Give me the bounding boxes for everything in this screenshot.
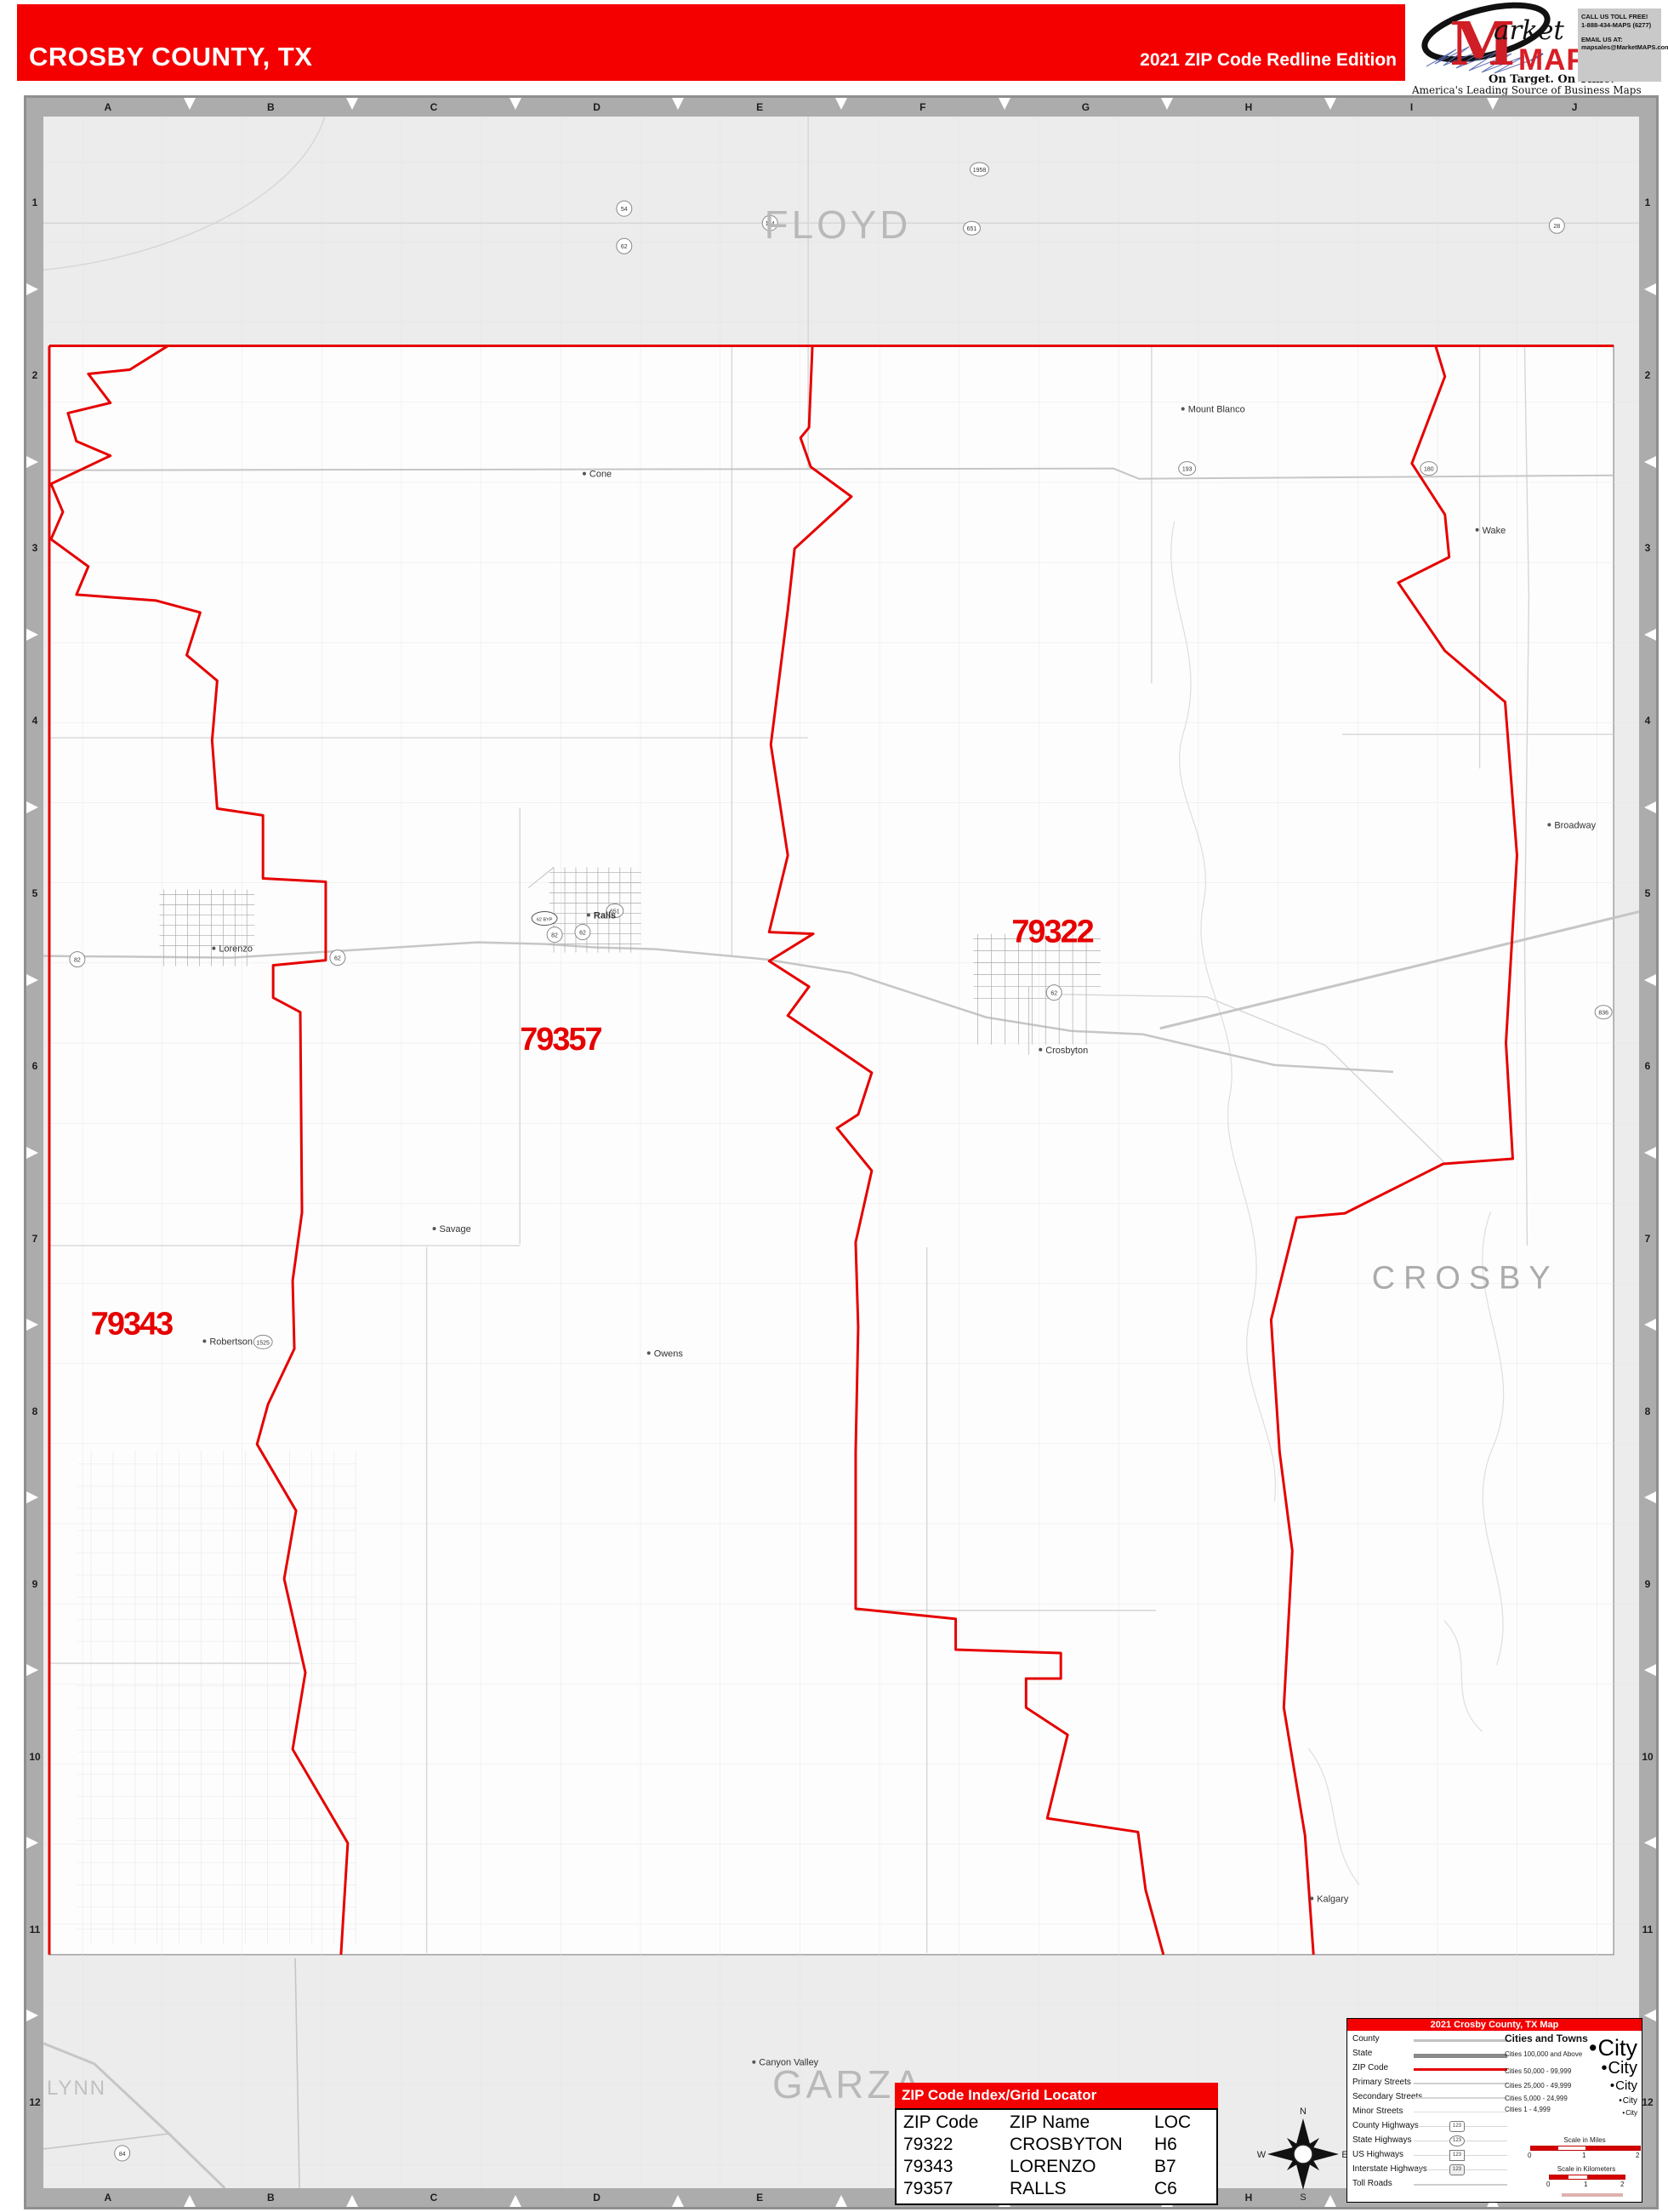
header-bar: CROSBY COUNTY, TX 2021 ZIP Code Redline … [17,4,1405,81]
ruler-cell: 9 [26,1497,43,1670]
contact-box: CALL US TOLL FREE! 1-888-434-MAPS (6277)… [1578,9,1661,82]
svg-text:651: 651 [967,226,977,232]
ruler-cell: 5 [26,807,43,980]
legend-title: 2021 Crosby County, TX Map [1347,2019,1642,2031]
ruler-cell: E [678,2188,841,2207]
ruler-cell: E [678,98,841,117]
edition-label: 2021 ZIP Code Redline Edition [1140,50,1397,71]
town: Lorenzo [212,944,253,955]
ruler-top: A B C D E F G H I J [26,98,1656,117]
highway-shield: 62 [1046,985,1062,1001]
ruler-cell: 2 [26,289,43,462]
town: Crosbyton [1039,1046,1088,1056]
legend-city-row: Cities 100,000 and AboveCity [1505,2050,1637,2059]
highway-shield: 54 [617,201,632,216]
logo-market: arket [1494,15,1564,46]
ruler-cell: 1 [1639,117,1656,289]
ruler-cell: H [1167,98,1330,117]
table-row: 79343 LORENZO B7 [897,2156,1216,2178]
ruler-cell: B [190,2188,353,2207]
ruler-cell: A [26,98,190,117]
ruler-cell: 7 [1639,1153,1656,1325]
svg-text:82: 82 [551,933,558,939]
svg-text:1958: 1958 [973,168,987,174]
page: CROSBY COUNTY, TX 2021 ZIP Code Redline … [0,0,1668,2212]
legend-row: Interstate Highways123 [1352,2164,1523,2178]
svg-text:62: 62 [579,931,586,937]
legend-city-row: Cities 5,000 - 24,999City [1505,2094,1637,2103]
compass-rose-icon: N S W E [1256,2105,1350,2202]
map-frame: A B C D E F G H I J A B C D E F G H I J … [24,95,1659,2209]
highway-shield: 180 [1420,462,1437,476]
ruler-cell: B [190,98,353,117]
ruler-cell: 10 [26,1670,43,1843]
contact-call: CALL US TOLL FREE! [1581,13,1659,21]
svg-text:82: 82 [74,958,81,964]
rural-street-grid [77,1451,357,1945]
ruler-right: 1 2 3 4 5 6 7 8 9 10 11 12 [1639,117,1656,2188]
svg-text:Owens: Owens [654,1348,684,1359]
svg-text:Ralls: Ralls [594,911,616,921]
legend-city-row: Cities 1 - 4,999City [1505,2105,1637,2114]
zip-index-body: ZIP Code ZIP Name LOC 79322 CROSBYTON H6… [895,2108,1218,2205]
ruler-cell: 3 [1639,462,1656,635]
contact-email: mapsales@MarketMAPS.com [1581,43,1659,52]
svg-text:Cone: Cone [589,470,612,480]
zip-index-title: ZIP Code Index/Grid Locator [895,2083,1218,2108]
ruler-cell: I [1330,98,1494,117]
ruler-left: 1 2 3 4 5 6 7 8 9 10 11 12 [26,117,43,2188]
svg-text:62 BYP: 62 BYP [537,918,553,923]
highway-shield: 62 [617,238,632,254]
legend-row: Primary Streets [1352,2078,1523,2091]
svg-text:1525: 1525 [256,1340,270,1346]
legend-row: US Highways123 [1352,2150,1523,2164]
county-label-lynn: LYNN [47,2077,106,2100]
scale-miles-bar [1530,2146,1641,2151]
svg-text:Crosbyton: Crosbyton [1045,1046,1088,1056]
ruler-cell: 5 [1639,807,1656,980]
interstate-shield-icon: 123 [1449,2164,1465,2175]
town: Broadway [1547,820,1596,830]
svg-text:Robertson: Robertson [209,1337,253,1347]
county-label-floyd: FLOYD [765,202,912,247]
zip-label-79343: 79343 [91,1306,173,1342]
county-label-crosby: CROSBY [1372,1260,1559,1296]
town: Mount Blanco [1181,405,1245,415]
highway-shield: 84 [115,2146,130,2161]
legend-row: County Highways123 [1352,2121,1523,2135]
ruler-cell: G [1005,98,1168,117]
legend-row: State [1352,2049,1523,2062]
ruler-cell: 10 [1639,1670,1656,1843]
legend-row: Secondary Streets [1352,2092,1523,2106]
highway-shield: 62 BYP [532,912,557,926]
ruler-cell: 4 [1639,635,1656,807]
compass-w: W [1257,2150,1267,2160]
scale-km-label: Scale in Kilometers [1549,2165,1624,2173]
legend-row: Toll Roads [1352,2179,1523,2192]
svg-text:193: 193 [1182,467,1193,473]
scale-km-bar [1549,2175,1625,2180]
highway-shield: 1958 [971,162,989,176]
highway-shield: 62 [330,950,345,966]
ruler-cell: C [352,98,515,117]
ruler-cell: F [841,98,1005,117]
state-highway-shield-icon: 123 [1449,2135,1465,2146]
ruler-cell: 1 [26,117,43,289]
legend-row: Minor Streets [1352,2107,1523,2120]
zip-label-79357: 79357 [520,1022,601,1058]
table-header-row: ZIP Code ZIP Name LOC [897,2112,1216,2134]
logo-subtitle: America's Leading Source of Business Map… [1411,84,1642,95]
highway-shield: 193 [1179,462,1196,476]
svg-text:Wake: Wake [1483,526,1506,536]
city-sample: City [1589,2035,1637,2061]
ruler-cell: 11 [26,1843,43,2015]
highway-shield: 28 [1549,218,1564,233]
ruler-cell: 12 [26,2015,43,2188]
legend-city-row: Cities 25,000 - 49,999City [1505,2081,1637,2090]
svg-text:54: 54 [621,207,628,213]
table-row: 79357 RALLS C6 [897,2178,1216,2200]
contact-phone: 1-888-434-MAPS (6277) [1581,21,1659,30]
city-sample: City [1622,2109,1637,2117]
zip-index-table: ZIP Code Index/Grid Locator ZIP Code ZIP… [895,2083,1218,2205]
svg-text:Kalgary: Kalgary [1317,1894,1349,1904]
ruler-cell: 8 [1639,1325,1656,1497]
ruler-cell: A [26,2188,190,2207]
contact-email-label: EMAIL US AT: [1581,36,1659,44]
ruler-cell: 2 [1639,289,1656,462]
compass-n: N [1300,2107,1307,2117]
svg-text:62: 62 [1050,991,1057,997]
svg-text:836: 836 [1598,1011,1608,1017]
ruler-cell: D [515,2188,679,2207]
ruler-cell: 11 [1639,1843,1656,2015]
highway-shield: 82 [547,927,562,943]
county-highway-shield-icon: 123 [1449,2121,1465,2132]
scale-miles-label: Scale in Miles [1530,2136,1639,2144]
ruler-cell: 4 [26,635,43,807]
highway-shield: 836 [1595,1006,1612,1019]
marketmaps-logo: M arket MAPS On Target. On Time. America… [1405,0,1668,95]
svg-text:Mount Blanco: Mount Blanco [1188,405,1245,415]
town: Robertson [202,1337,253,1347]
ruler-cell: 6 [1639,980,1656,1153]
city-sample: City [1602,2059,1637,2078]
ruler-cell: 6 [26,980,43,1153]
svg-text:Savage: Savage [440,1224,471,1234]
highway-shield: 651 [964,221,981,235]
page-title: CROSBY COUNTY, TX [29,42,312,72]
legend: 2021 Crosby County, TX Map County State … [1346,2018,1642,2203]
svg-text:Broadway: Broadway [1554,820,1596,830]
highway-shield: 1525 [253,1335,272,1348]
ruler-cell: 3 [26,462,43,635]
ruler-cell: 7 [26,1153,43,1325]
map-area: 54 62 1958 651 2591 28 114 193 180 82 62… [43,117,1639,2188]
zip-label-79322: 79322 [1011,915,1093,950]
table-row: 79322 CROSBYTON H6 [897,2134,1216,2156]
svg-text:84: 84 [119,2152,126,2158]
ruler-cell: J [1493,98,1656,117]
svg-text:180: 180 [1424,467,1434,473]
svg-text:28: 28 [1553,224,1560,230]
county-map: 54 62 1958 651 2591 28 114 193 180 82 62… [43,117,1639,2188]
ruler-cell: C [352,2188,515,2207]
ruler-cell: D [515,98,679,117]
legend-row: State Highways123 [1352,2135,1523,2149]
city-sample: City [1610,2078,1637,2093]
legend-row: ZIP Code [1352,2063,1523,2077]
svg-text:Lorenzo: Lorenzo [219,944,253,955]
highway-shield: 82 [70,952,85,967]
us-highway-shield-icon: 123 [1449,2150,1465,2161]
legend-cities-title: Cities and Towns [1505,2032,1588,2044]
legend-city-row: Cities 50,000 - 99,999City [1505,2067,1637,2076]
ruler-cell: 8 [26,1325,43,1497]
legend-fineprint [1562,2193,1623,2197]
compass-s: S [1300,2192,1306,2202]
svg-text:62: 62 [334,956,341,962]
ruler-cell: 9 [1639,1497,1656,1670]
highway-shield: 62 [575,925,590,940]
legend-row: County [1352,2034,1523,2048]
svg-text:62: 62 [621,244,628,250]
